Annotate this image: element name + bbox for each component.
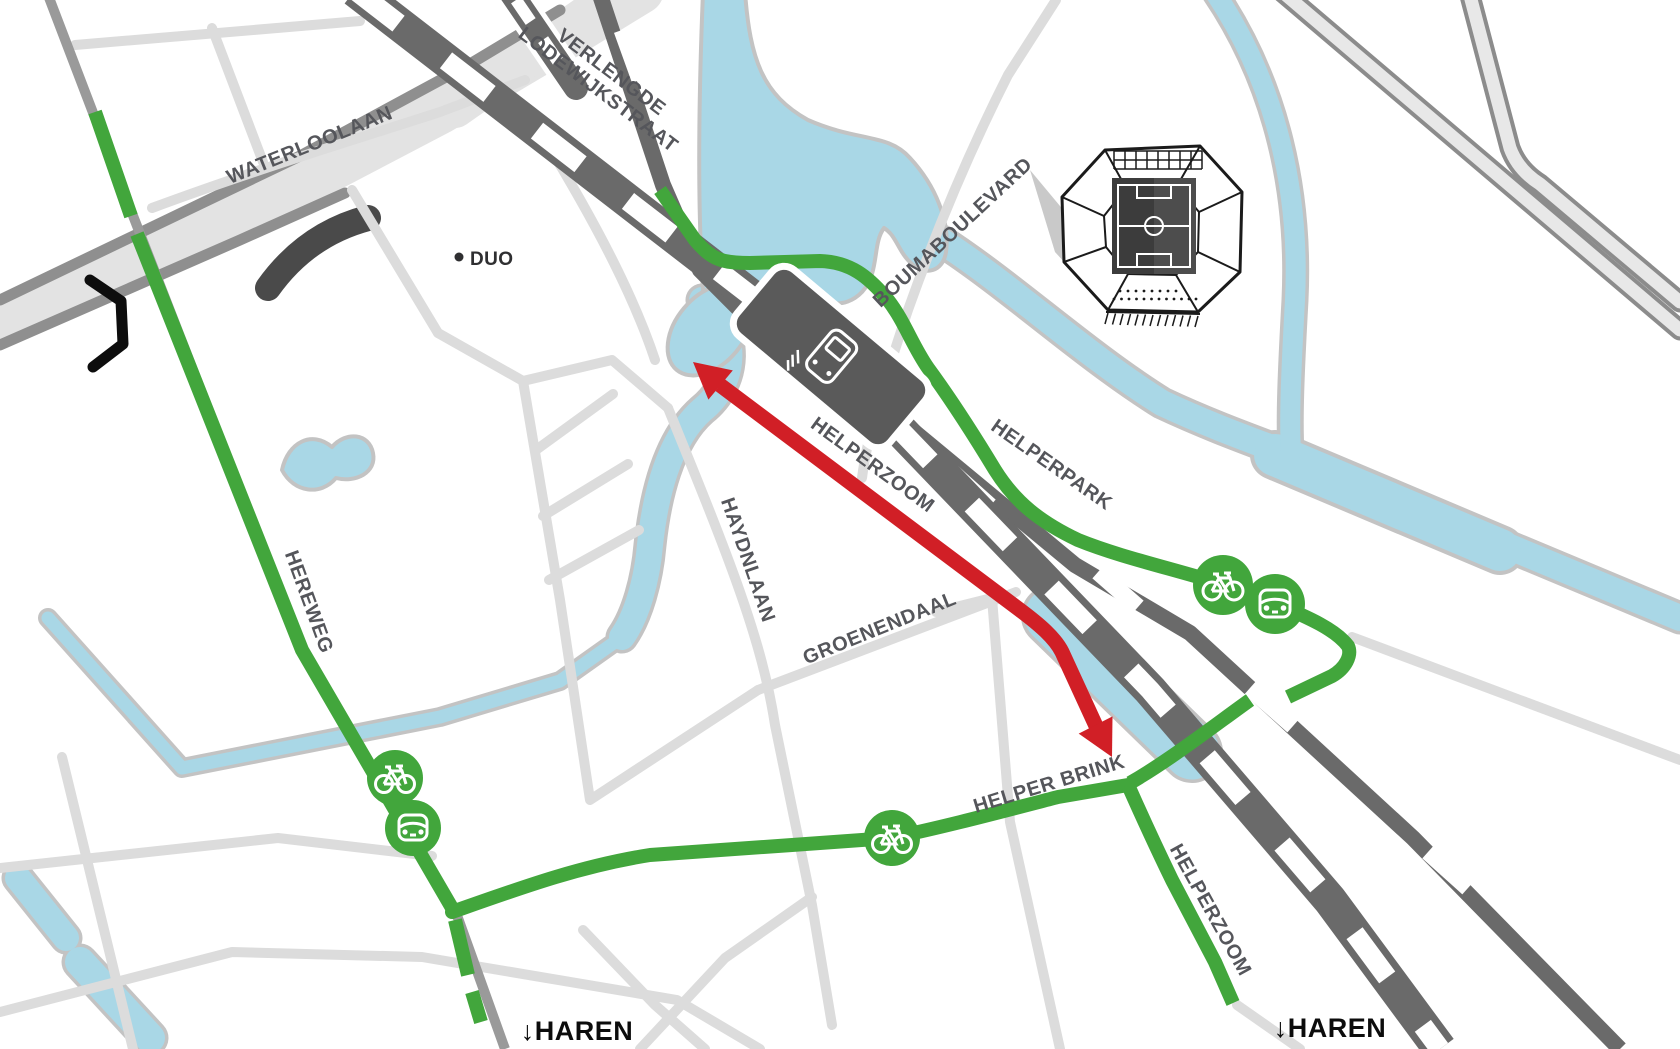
label-haren-southwest: ↓HAREN: [521, 1016, 634, 1046]
street-haydnlaan: [668, 408, 832, 1025]
label-duo: DUO: [470, 249, 513, 270]
bicycle-route-marker: [1193, 555, 1253, 615]
pond-haydnlaan: [282, 436, 373, 489]
car-route-marker: [1245, 574, 1305, 634]
duo-dot: [455, 253, 464, 262]
detour-map: WATERLOOLAAN VERLENGDE LODEWIJKSTRAAT DU…: [0, 0, 1680, 1049]
bicycle-route-marker: [367, 750, 423, 806]
car-route-marker: [385, 800, 441, 856]
bicycle-route-marker: [864, 810, 920, 866]
label-groenendaal: GROENENDAAL: [800, 588, 960, 670]
outlined-roads: [1280, 0, 1680, 330]
stadium: [1030, 146, 1242, 327]
label-haren-southeast: ↓HAREN: [1274, 1013, 1387, 1043]
stadium-fence: [1105, 312, 1200, 327]
route-helperzoom-south: [1128, 785, 1233, 1003]
